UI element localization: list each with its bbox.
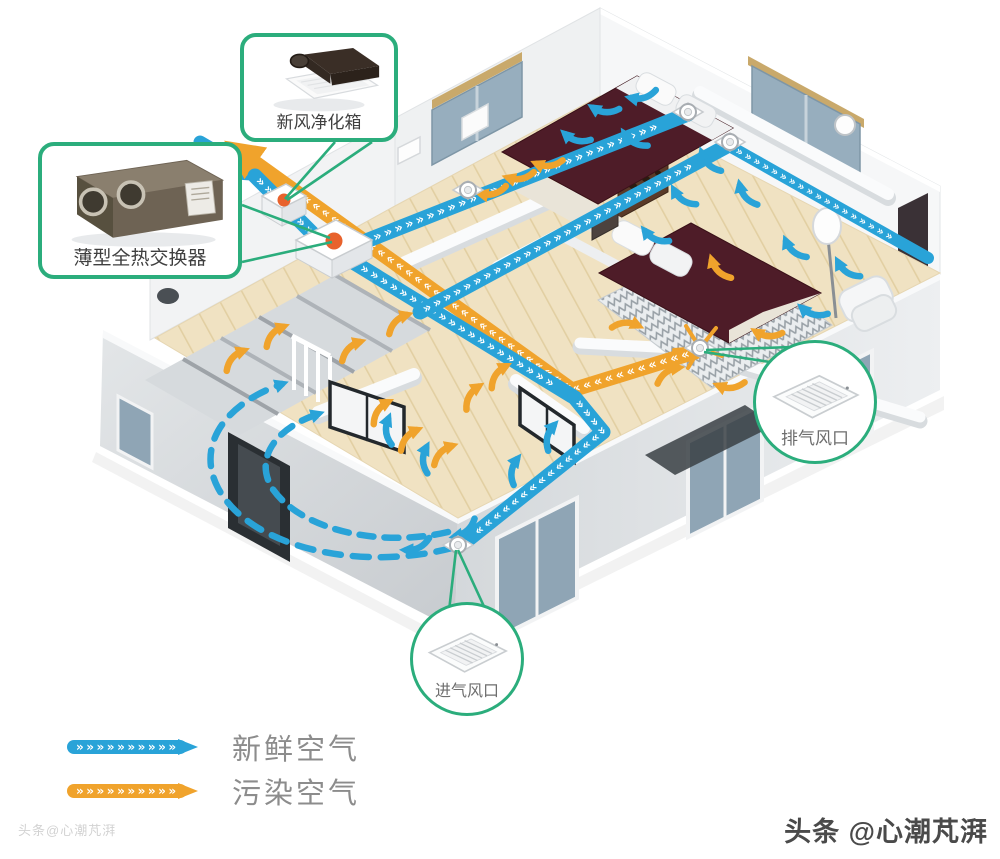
callout-purifier-box: 新风净化箱 (240, 33, 398, 142)
watermark-bottom-left: 头条@心潮芃湃 (18, 820, 116, 839)
fresh-air-arrow: »»»»»»»»»»»» (66, 736, 206, 758)
purifier-label: 新风净化箱 (277, 114, 362, 138)
svg-text:»»»»»»»»»»»»: »»»»»»»»»»»» (66, 736, 179, 754)
exhaust-vent-grille-image (767, 366, 863, 424)
polluted-air-arrow: »»»»»»»»»»»» (66, 780, 206, 802)
intake-vent-label: 进气风口 (435, 677, 499, 713)
legend-label-polluted-air: 污染空气 (232, 770, 360, 812)
ventilation-diagram: »»»»»»»»»»»»»»»»»»»»»»»»»»»»»»»»»»»»»»»»… (0, 0, 1000, 859)
callout-heat-exchanger-box: 薄型全热交换器 (38, 142, 242, 279)
watermark-bottom-right: 头条 @心潮芃湃 (784, 810, 988, 849)
legend-item-polluted-air: »»»»»»»»»»»» 污染空气 (66, 770, 360, 812)
ceiling-fan-unit-image (254, 42, 384, 114)
intake-vent-grille-image (423, 625, 511, 677)
exhaust-vent-label: 排气风口 (781, 424, 849, 461)
callout-exhaust-vent: 排气风口 (753, 340, 877, 464)
exchanger-marker-dot (326, 233, 343, 250)
legend: »»»»»»»»»»»» 新鲜空气 »»»»»»»»»»»» 污染空气 (66, 726, 360, 814)
legend-label-fresh-air: 新鲜空气 (232, 726, 360, 768)
heat-exchanger-label: 薄型全热交换器 (73, 249, 206, 275)
heat-exchanger-image (50, 151, 230, 249)
svg-text:»»»»»»»»»»»»: »»»»»»»»»»»» (66, 780, 179, 798)
legend-item-fresh-air: »»»»»»»»»»»» 新鲜空气 (66, 726, 360, 768)
callout-intake-vent: 进气风口 (410, 602, 524, 716)
